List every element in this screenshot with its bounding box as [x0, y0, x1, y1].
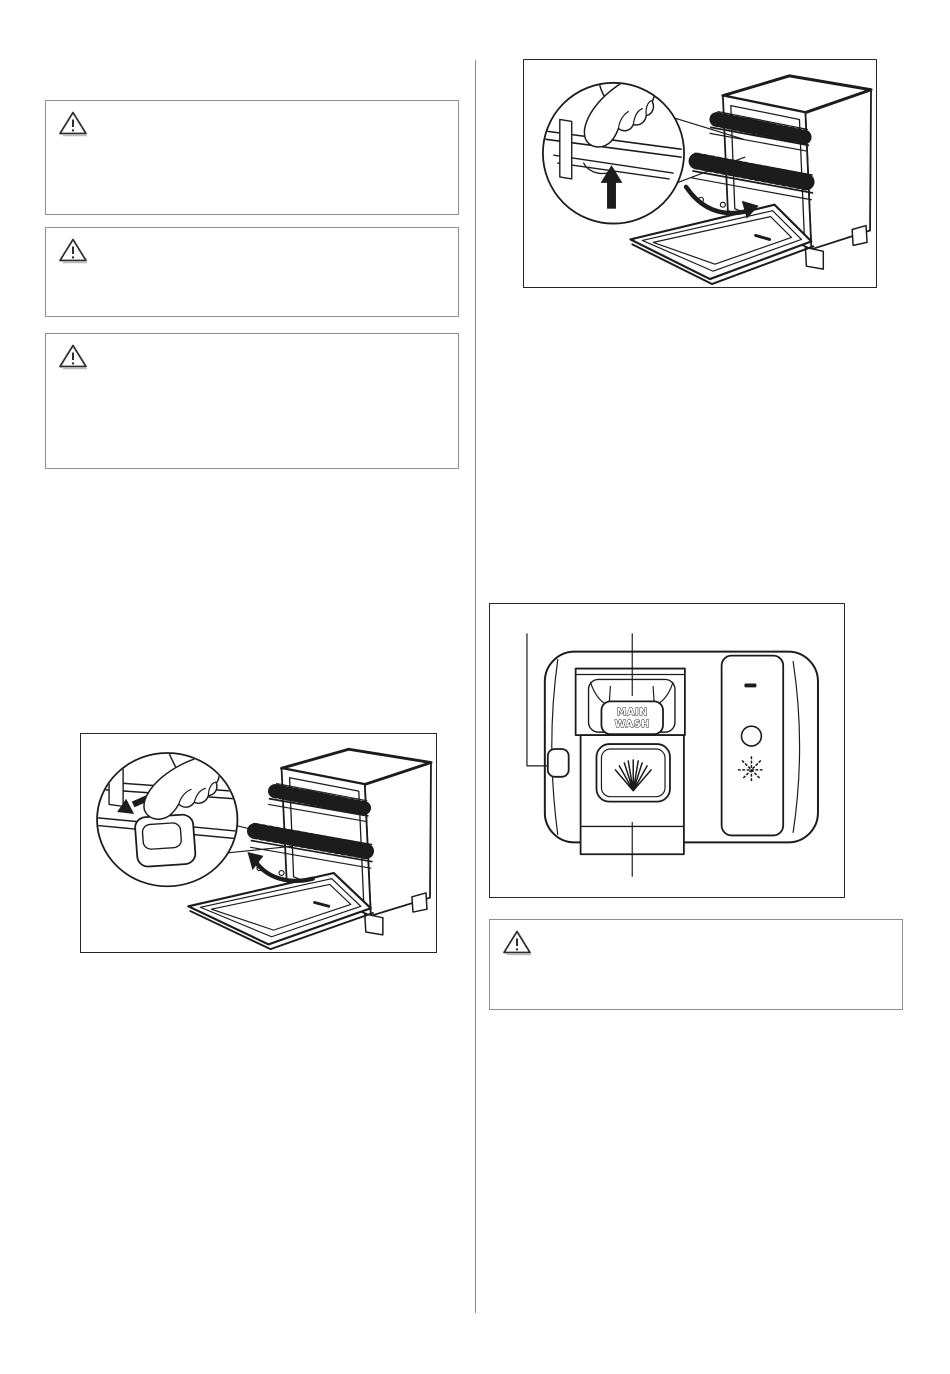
dispenser-release-button: [548, 749, 569, 777]
figure-dishwasher-basket-latch-arrow-left: [80, 733, 437, 953]
warning-box-1: [45, 100, 459, 215]
dishwasher-illustration-arrow-left: [81, 734, 436, 952]
main-wash-label-line1: MAIN: [617, 707, 648, 718]
column-divider: [475, 60, 476, 1313]
warning-box-3: [45, 333, 459, 469]
dishwasher-illustration-arrow-up: [524, 60, 876, 287]
warning-box-2: [45, 227, 459, 317]
figure-dishwasher-basket-rail-arrow-up: [523, 59, 877, 288]
rinse-aid-indicator-icon: [741, 726, 761, 746]
detergent-dispenser-illustration: MAIN WASH: [490, 604, 844, 897]
warning-triangle-icon: [57, 109, 89, 138]
manual-page: MAIN WASH: [0, 0, 950, 1374]
warning-box-4: [489, 919, 903, 1010]
warning-triangle-icon: [57, 236, 89, 265]
main-wash-label-line2: WASH: [615, 719, 650, 730]
vent-slot-icon: [744, 683, 756, 687]
figure-detergent-dispenser: MAIN WASH: [489, 603, 845, 898]
warning-triangle-icon: [501, 928, 533, 957]
warning-triangle-icon: [57, 342, 89, 371]
